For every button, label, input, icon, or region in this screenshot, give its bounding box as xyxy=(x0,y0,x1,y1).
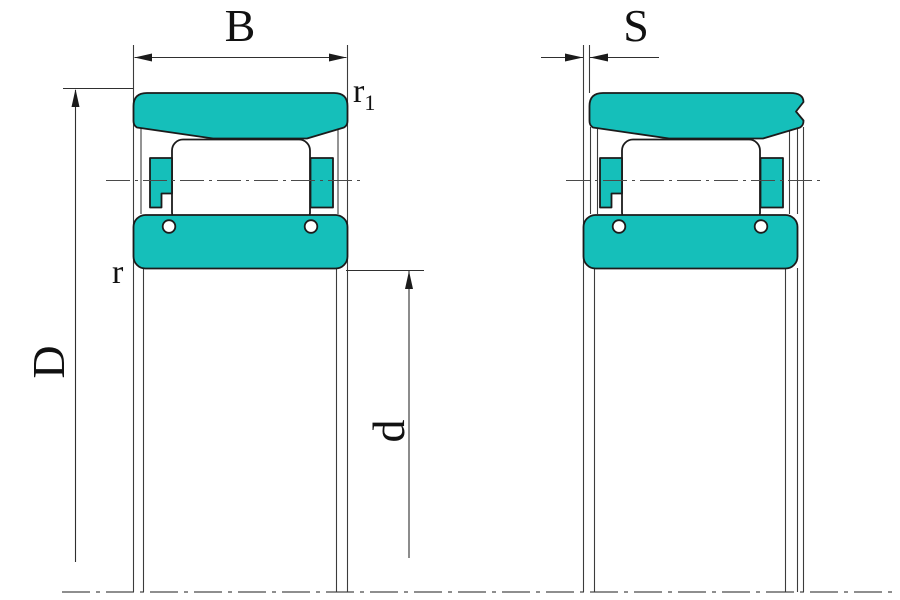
arrowhead-right xyxy=(329,54,347,62)
roller xyxy=(172,140,310,224)
cage-rivet-left xyxy=(613,220,626,233)
cage-segment-right xyxy=(311,158,334,208)
cage-segment-right xyxy=(761,158,784,208)
label-r1: r1 xyxy=(353,73,375,115)
bearing-drawing-canvas: B S D d r1 r xyxy=(0,0,900,600)
label-r: r xyxy=(112,254,124,291)
arrowhead-up xyxy=(405,271,413,289)
cage-rivet-right xyxy=(305,220,318,233)
arrowhead-right xyxy=(590,54,608,62)
dimension-d: d xyxy=(346,271,424,559)
dimension-D: D xyxy=(23,89,134,563)
label-r1-sub: 1 xyxy=(364,90,375,115)
label-d: d xyxy=(363,420,414,443)
cage-rivet-left xyxy=(163,220,176,233)
roller xyxy=(622,140,760,224)
label-S: S xyxy=(623,0,649,51)
outer-ring xyxy=(590,93,804,139)
dimension-S: S xyxy=(541,0,659,62)
label-r1-base: r xyxy=(353,73,365,110)
arrowhead-left xyxy=(565,54,583,62)
cylindrical-roller-bearing-diagram: B S D d r1 r xyxy=(0,0,900,600)
outer-ring xyxy=(134,93,348,139)
label-D: D xyxy=(23,345,74,378)
arrowhead-left xyxy=(135,54,153,62)
cage-segment-left xyxy=(150,158,172,208)
left-bearing-section xyxy=(106,45,364,592)
dimension-B: B xyxy=(135,0,347,62)
label-B: B xyxy=(225,0,256,51)
cage-segment-left xyxy=(600,158,622,208)
right-bearing-section xyxy=(566,45,820,592)
arrowhead-up xyxy=(72,89,80,107)
cage-rivet-right xyxy=(755,220,768,233)
